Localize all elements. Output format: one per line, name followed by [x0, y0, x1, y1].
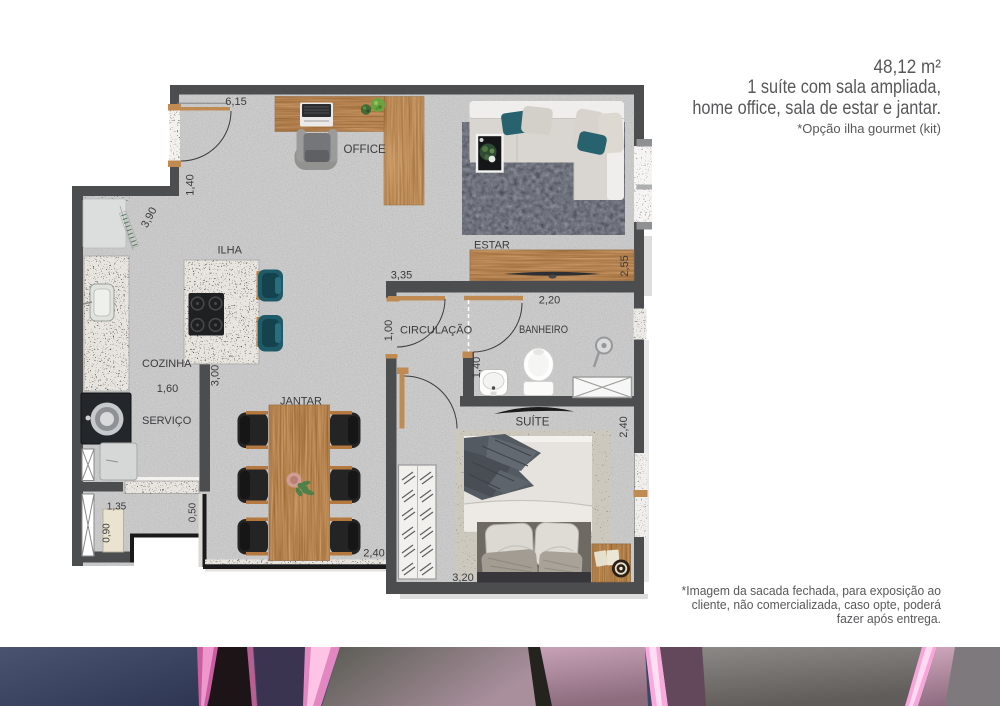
svg-text:SUÍTE: SUÍTE: [516, 416, 550, 429]
svg-text:CIRCULAÇÃO: CIRCULAÇÃO: [400, 324, 473, 337]
svg-text:3,20: 3,20: [452, 572, 473, 584]
svg-text:0,50: 0,50: [188, 502, 199, 522]
svg-text:ILHA: ILHA: [218, 245, 243, 257]
svg-text:1,40: 1,40: [471, 357, 483, 378]
svg-text:2,40: 2,40: [618, 416, 630, 437]
svg-text:SERVIÇO: SERVIÇO: [142, 415, 192, 427]
svg-text:JANTAR: JANTAR: [280, 396, 322, 408]
svg-text:2,40: 2,40: [363, 548, 384, 560]
svg-text:1,60: 1,60: [157, 383, 178, 395]
svg-text:3,00: 3,00: [210, 365, 222, 386]
svg-text:1,35: 1,35: [107, 502, 127, 513]
svg-text:3,35: 3,35: [391, 270, 412, 282]
svg-text:COZINHA: COZINHA: [142, 358, 192, 370]
svg-text:1,00: 1,00: [383, 320, 395, 341]
svg-text:2,20: 2,20: [539, 295, 560, 307]
svg-text:BANHEIRO: BANHEIRO: [519, 324, 568, 336]
svg-text:6,15: 6,15: [225, 96, 246, 108]
svg-text:2,55: 2,55: [619, 255, 631, 276]
svg-text:ESTAR: ESTAR: [474, 240, 510, 252]
svg-text:0,90: 0,90: [102, 523, 113, 543]
svg-text:OFFICE: OFFICE: [344, 144, 386, 156]
svg-text:1,40: 1,40: [185, 174, 197, 195]
